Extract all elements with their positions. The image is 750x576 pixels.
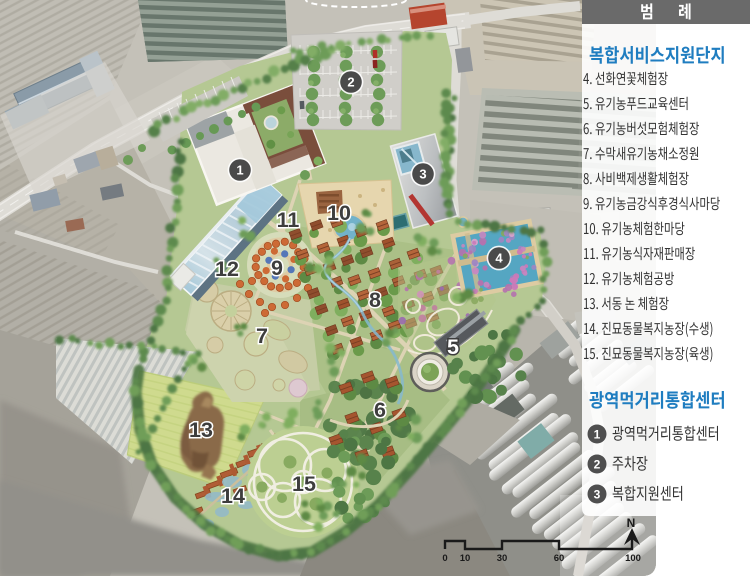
svg-text:2: 2	[594, 458, 601, 472]
svg-text:6: 6	[374, 398, 386, 422]
svg-text:10: 10	[327, 201, 351, 225]
svg-text:8: 8	[369, 288, 381, 312]
svg-text:3: 3	[594, 488, 601, 502]
svg-text:60: 60	[554, 553, 565, 564]
svg-text:100: 100	[625, 553, 641, 564]
svg-text:12: 12	[215, 257, 239, 281]
svg-text:4: 4	[495, 251, 503, 266]
svg-text:11: 11	[277, 208, 300, 232]
svg-text:7: 7	[256, 324, 268, 348]
svg-text:5: 5	[447, 335, 459, 359]
svg-text:30: 30	[497, 553, 508, 564]
svg-text:2: 2	[347, 75, 354, 90]
svg-text:10: 10	[460, 553, 471, 564]
svg-text:1: 1	[594, 428, 601, 442]
svg-text:9: 9	[271, 256, 283, 280]
svg-text:N: N	[627, 516, 636, 530]
svg-text:14: 14	[221, 484, 245, 508]
svg-text:13: 13	[189, 418, 213, 442]
svg-text:1: 1	[236, 163, 243, 178]
svg-text:3: 3	[419, 167, 426, 182]
svg-text:0: 0	[442, 553, 447, 564]
svg-text:15: 15	[292, 472, 316, 496]
